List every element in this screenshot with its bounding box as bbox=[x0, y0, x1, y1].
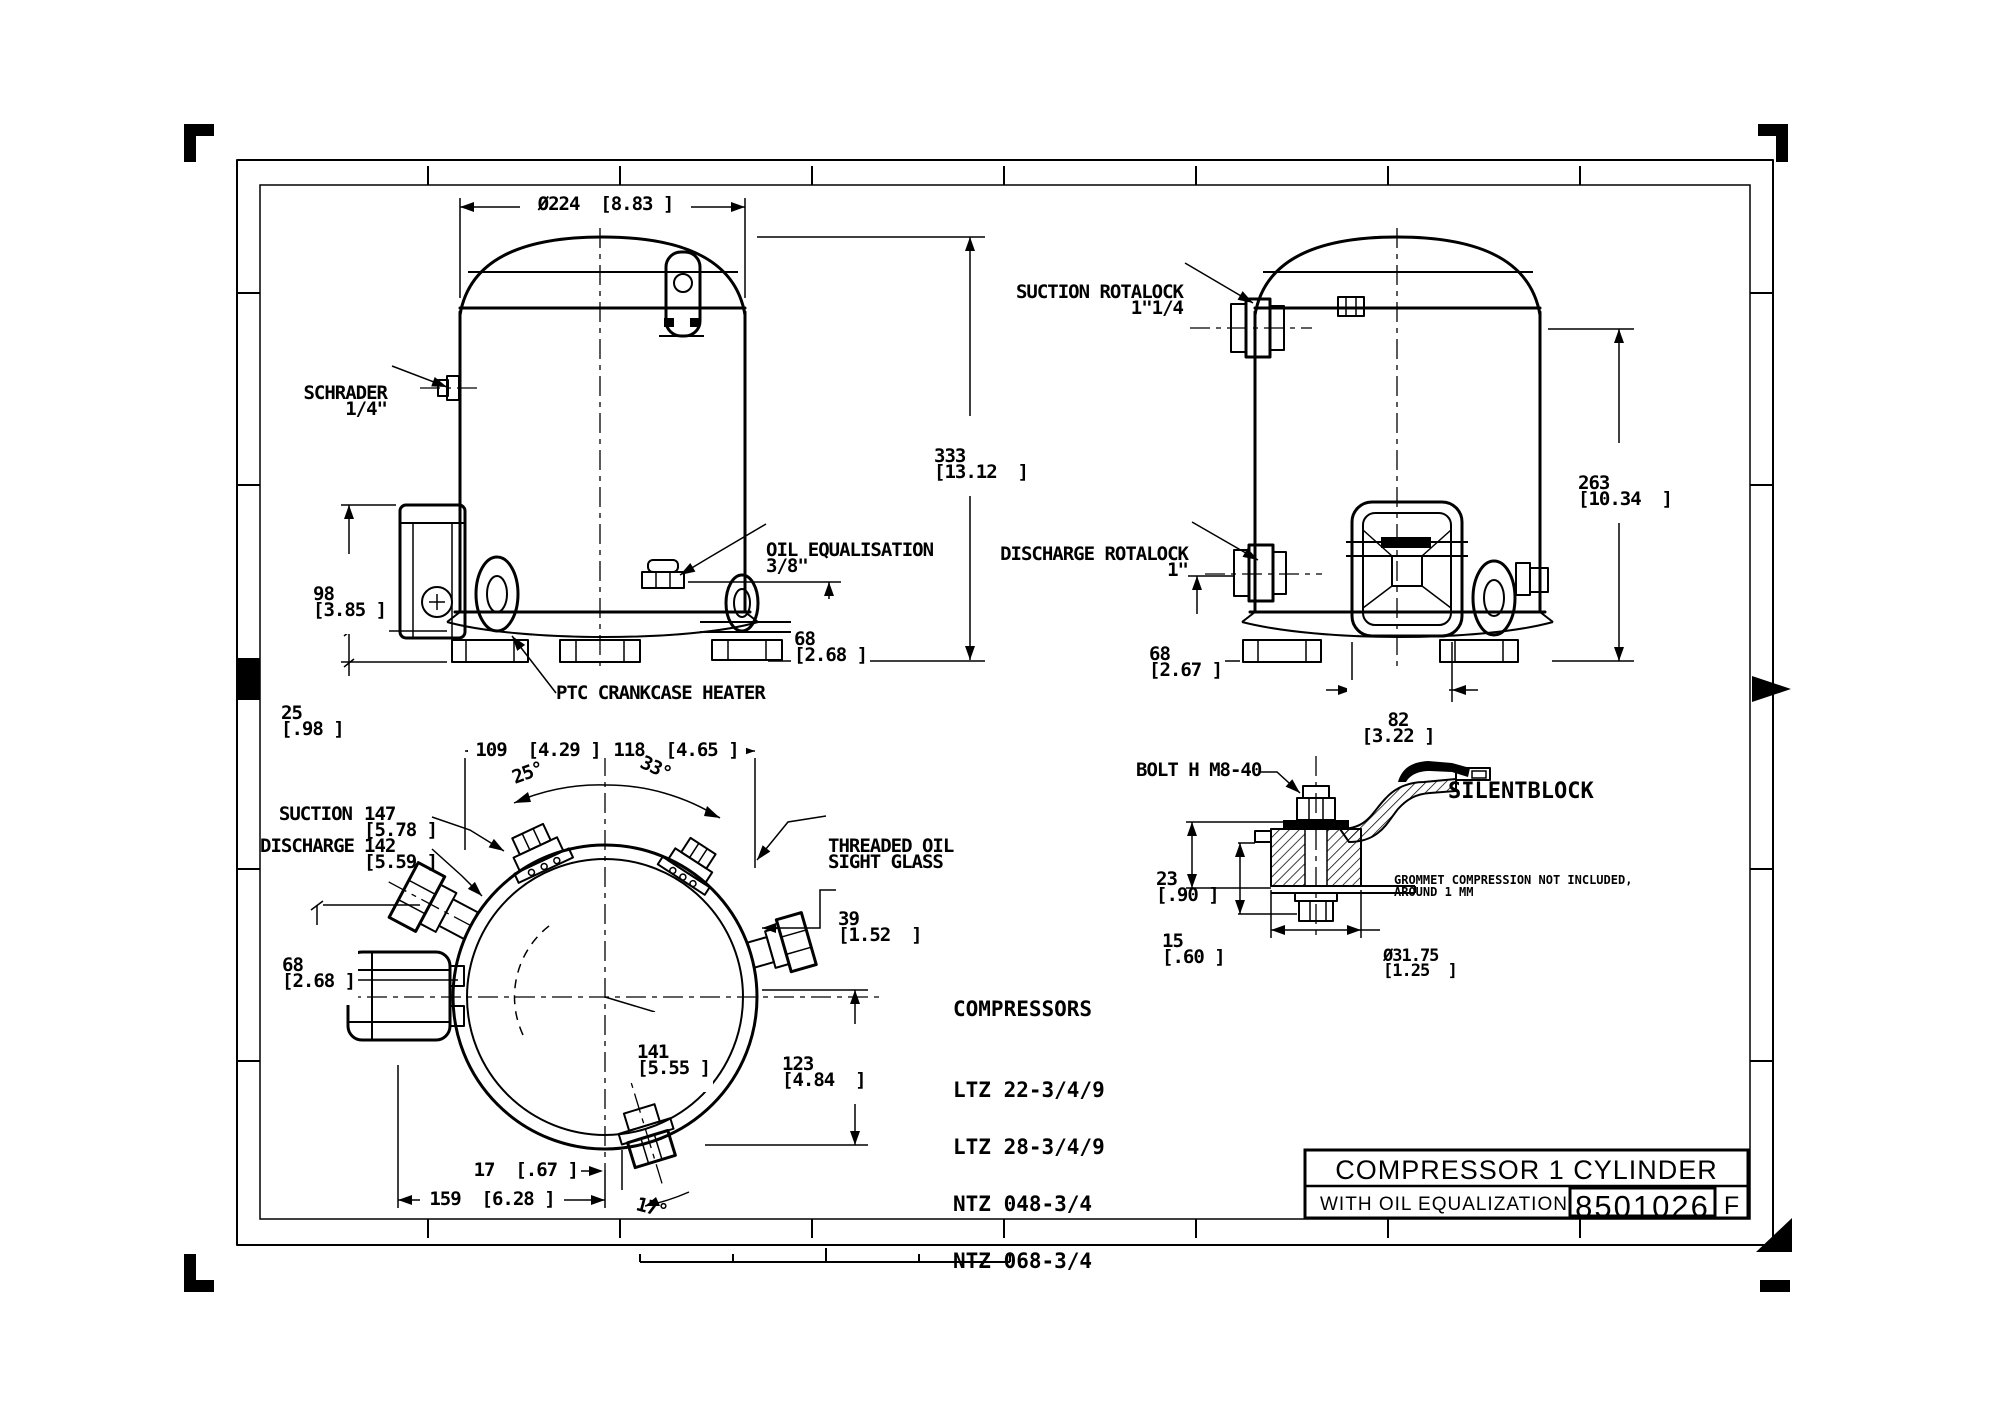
drawing-sheet: Ø224 [8.83 ] SCHRADER1/4" 333[13.12 ] OI… bbox=[0, 0, 2000, 1416]
dim-bottom-109: 109 [4.29 ] bbox=[468, 742, 608, 758]
label-ptc-heater: PTC CRANKCASE HEATER bbox=[556, 685, 765, 701]
label-discharge: DISCHARGE bbox=[260, 838, 352, 854]
dim-front-height: 333[13.12 ] bbox=[931, 416, 1031, 496]
label-suction-rotalock: SUCTION ROTALOCK1"1/4 bbox=[1008, 252, 1183, 332]
model-item: NTZ 068-3/4 bbox=[953, 1252, 1105, 1271]
label-silentblock: SILENTBLOCK bbox=[1448, 784, 1594, 800]
dim-front-diameter: Ø224 [8.83 ] bbox=[520, 196, 691, 212]
dim-bottom-17: 17 [.67 ] bbox=[468, 1162, 578, 1178]
dim-bottom-141: 141[5.55 ] bbox=[634, 1012, 713, 1092]
dim-bottom-39: 39[1.52 ] bbox=[838, 879, 922, 959]
dim-bottom-68: 68[2.68 ] bbox=[279, 925, 358, 1005]
model-item: NTZ 048-3/4 bbox=[953, 1195, 1105, 1214]
dim-front-98: 98[3.85 ] bbox=[310, 554, 389, 634]
label-oil-equalisation: OIL EQUALISATION3/8" bbox=[766, 510, 933, 590]
dim-sb-15: 15[.60 ] bbox=[1162, 901, 1225, 981]
titleblock-revision: F bbox=[1715, 1192, 1748, 1221]
label-schrader: SCHRADER1/4" bbox=[273, 353, 387, 433]
dim-front-25: 25[.98 ] bbox=[281, 673, 344, 753]
model-item: LTZ 22-3/4/9 bbox=[953, 1081, 1105, 1100]
dim-front-68: 68[2.68 ] bbox=[791, 599, 870, 679]
compressors-title: COMPRESSORS bbox=[953, 1000, 1092, 1019]
titleblock-number: 8501026 bbox=[1570, 1189, 1715, 1225]
side-view-linework bbox=[1190, 228, 1553, 668]
model-item: LTZ 28-3/4/9 bbox=[953, 1138, 1105, 1157]
titleblock-subtitle: WITH OIL EQUALIZATION bbox=[1320, 1194, 1568, 1216]
dim-bottom-123: 123[4.84 ] bbox=[779, 1024, 869, 1104]
label-discharge-rotalock: DISCHARGE ROTALOCK1" bbox=[998, 514, 1188, 594]
dim-bottom-159: 159 [6.28 ] bbox=[420, 1191, 564, 1207]
label-sight-glass: THREADED OILSIGHT GLASS bbox=[828, 806, 953, 886]
dim-discharge-142-in: [5.59 ] bbox=[364, 854, 437, 870]
titleblock-title: COMPRESSOR 1 CYLINDER bbox=[1305, 1155, 1748, 1186]
front-view-linework bbox=[400, 228, 792, 668]
label-suction: SUCTION bbox=[260, 806, 352, 822]
dim-bottom-118: 118 [4.65 ] bbox=[606, 742, 746, 758]
angle-17: 17° bbox=[634, 1196, 668, 1220]
label-bolt: BOLT H M8-40 bbox=[1136, 762, 1261, 778]
note-grommet: GROMMET COMPRESSION NOT INCLUDED,AROUND … bbox=[1394, 850, 1632, 910]
dim-side-68: 68[2.67 ] bbox=[1146, 614, 1225, 694]
dim-sb-diameter: Ø31.75[1.25 ] bbox=[1383, 919, 1457, 994]
compressors-models: LTZ 22-3/4/9 LTZ 28-3/4/9 NTZ 048-3/4 NT… bbox=[953, 1043, 1105, 1290]
dim-side-height: 263[10.34 ] bbox=[1575, 443, 1675, 523]
frame-center-arrow bbox=[1752, 676, 1791, 702]
dim-side-82: 82[3.22 ] bbox=[1347, 680, 1449, 760]
